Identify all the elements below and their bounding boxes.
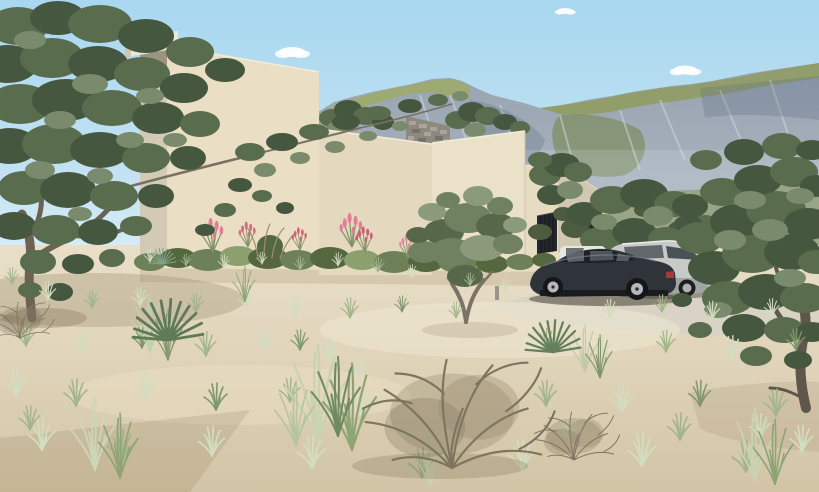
left-tree-branch-spray-part: [299, 124, 329, 140]
corner-tree-part: [557, 181, 583, 199]
left-tree-branch-spray-part: [266, 133, 298, 151]
mid-tree-canopy-part: [436, 192, 460, 208]
left-tree-canopy-part: [90, 181, 138, 211]
stone-wall-section-part-part: [424, 132, 431, 136]
right-tree-canopy-part: [784, 351, 812, 369]
left-tree-canopy-part: [44, 111, 76, 129]
right-tree-canopy-part: [724, 139, 764, 165]
left-tree-canopy-part: [132, 102, 184, 134]
mid-tree-canopy-part: [447, 265, 483, 287]
left-tree-canopy-part: [25, 161, 55, 179]
left-tree-branch-spray-part: [252, 190, 272, 202]
stone-wall-section-part-part: [418, 138, 426, 142]
right-tree-canopy-part: [688, 322, 712, 338]
right-tree-canopy-part: [690, 150, 722, 170]
left-tree-branch-spray-part: [392, 121, 408, 131]
left-tree-canopy-part: [68, 207, 92, 221]
left-tree-branch-spray-part: [325, 141, 345, 153]
left-tree-canopy-part: [72, 74, 108, 94]
left-tree-branch-spray-part: [365, 106, 391, 120]
left-tree-branch-spray-part: [359, 131, 377, 141]
left-tree-canopy-part: [180, 111, 220, 137]
left-tree-canopy-part: [163, 133, 187, 147]
left-tree-canopy-part: [99, 249, 125, 267]
right-tree-canopy-part: [740, 346, 772, 366]
corner-tree-part: [528, 152, 552, 168]
left-tree-branch-spray-part: [332, 114, 360, 130]
bed-bushes-part: [257, 235, 283, 257]
stone-wall-section-part-part: [440, 130, 447, 134]
left-tree-canopy-part: [160, 73, 208, 103]
left-tree-branch-spray-part: [452, 91, 468, 101]
stone-wall-section-part-part: [412, 129, 420, 133]
stone-wall-section-part-part: [408, 136, 414, 140]
right-tree-canopy-part: [734, 191, 766, 209]
roof-shrubs-behind-part: [464, 123, 486, 137]
driveway-bollard: [495, 286, 499, 300]
right-tree-canopy-part: [752, 219, 788, 241]
olive-tree-behind-cars-part: [643, 206, 673, 226]
left-tree-branch-spray-part: [290, 152, 310, 164]
right-tree-canopy-part: [762, 133, 802, 159]
stone-wall-section-part-part: [419, 124, 427, 128]
left-tree-canopy-part: [18, 282, 42, 298]
left-tree-canopy-part: [62, 254, 94, 274]
stone-wall-section-part-part: [435, 136, 443, 140]
stone-wall-section-part-part: [430, 127, 437, 131]
left-tree-canopy-part: [138, 184, 174, 208]
mid-tree-canopy-part: [408, 241, 440, 263]
left-tree-branch-spray-part: [228, 178, 252, 192]
left-tree-canopy-part: [78, 219, 118, 245]
left-tree-branch-spray-part: [214, 203, 236, 217]
rendering-canvas: Photorealistic 3D rendering of a modern …: [0, 0, 819, 492]
right-tree-canopy-part: [774, 269, 806, 287]
left-tree-canopy-part: [136, 88, 164, 104]
left-tree-canopy-part: [14, 31, 46, 49]
left-tree-canopy-part: [116, 132, 144, 148]
mid-tree-shadow: [422, 322, 518, 338]
mid-tree-canopy-part: [406, 227, 430, 243]
bed-bushes-part: [310, 247, 350, 269]
coupe-taillight: [666, 271, 674, 278]
stone-wall-section-part-part: [409, 121, 416, 125]
corner-tree-part: [564, 162, 592, 182]
left-tree-canopy-part: [166, 37, 214, 67]
left-tree-canopy-part: [120, 216, 152, 236]
mid-tree-canopy-part: [503, 217, 527, 233]
left-tree-canopy-part: [205, 58, 245, 82]
left-tree-branch-spray-part: [428, 94, 448, 106]
silver-estate-car-part: [683, 284, 692, 293]
mid-tree-canopy-part: [463, 186, 493, 206]
left-tree-branch-spray-part: [254, 163, 276, 177]
left-tree-canopy-part: [118, 19, 174, 53]
dark-coupe-part: [551, 285, 554, 288]
mid-tree-canopy-part: [493, 234, 523, 254]
left-tree-canopy-part: [170, 146, 206, 170]
olive-tree-behind-cars-part: [591, 214, 617, 230]
left-tree-canopy-part: [20, 250, 56, 274]
left-tree-branch-spray-part: [235, 143, 265, 161]
right-tree-canopy-part: [672, 293, 692, 307]
right-tree-canopy-part: [714, 230, 746, 250]
right-tree-canopy-part: [786, 188, 814, 204]
dark-coupe-part: [635, 287, 639, 291]
left-tree-branch-spray-part: [195, 224, 215, 236]
bed-bushes-part: [506, 254, 534, 270]
left-tree-branch-spray-part: [276, 202, 294, 214]
hill-base-trees-part: [528, 224, 552, 240]
scene: Photorealistic 3D rendering of a modern …: [0, 0, 819, 492]
left-tree-branch-spray-part: [398, 99, 422, 113]
left-tree-canopy-part: [87, 168, 113, 184]
